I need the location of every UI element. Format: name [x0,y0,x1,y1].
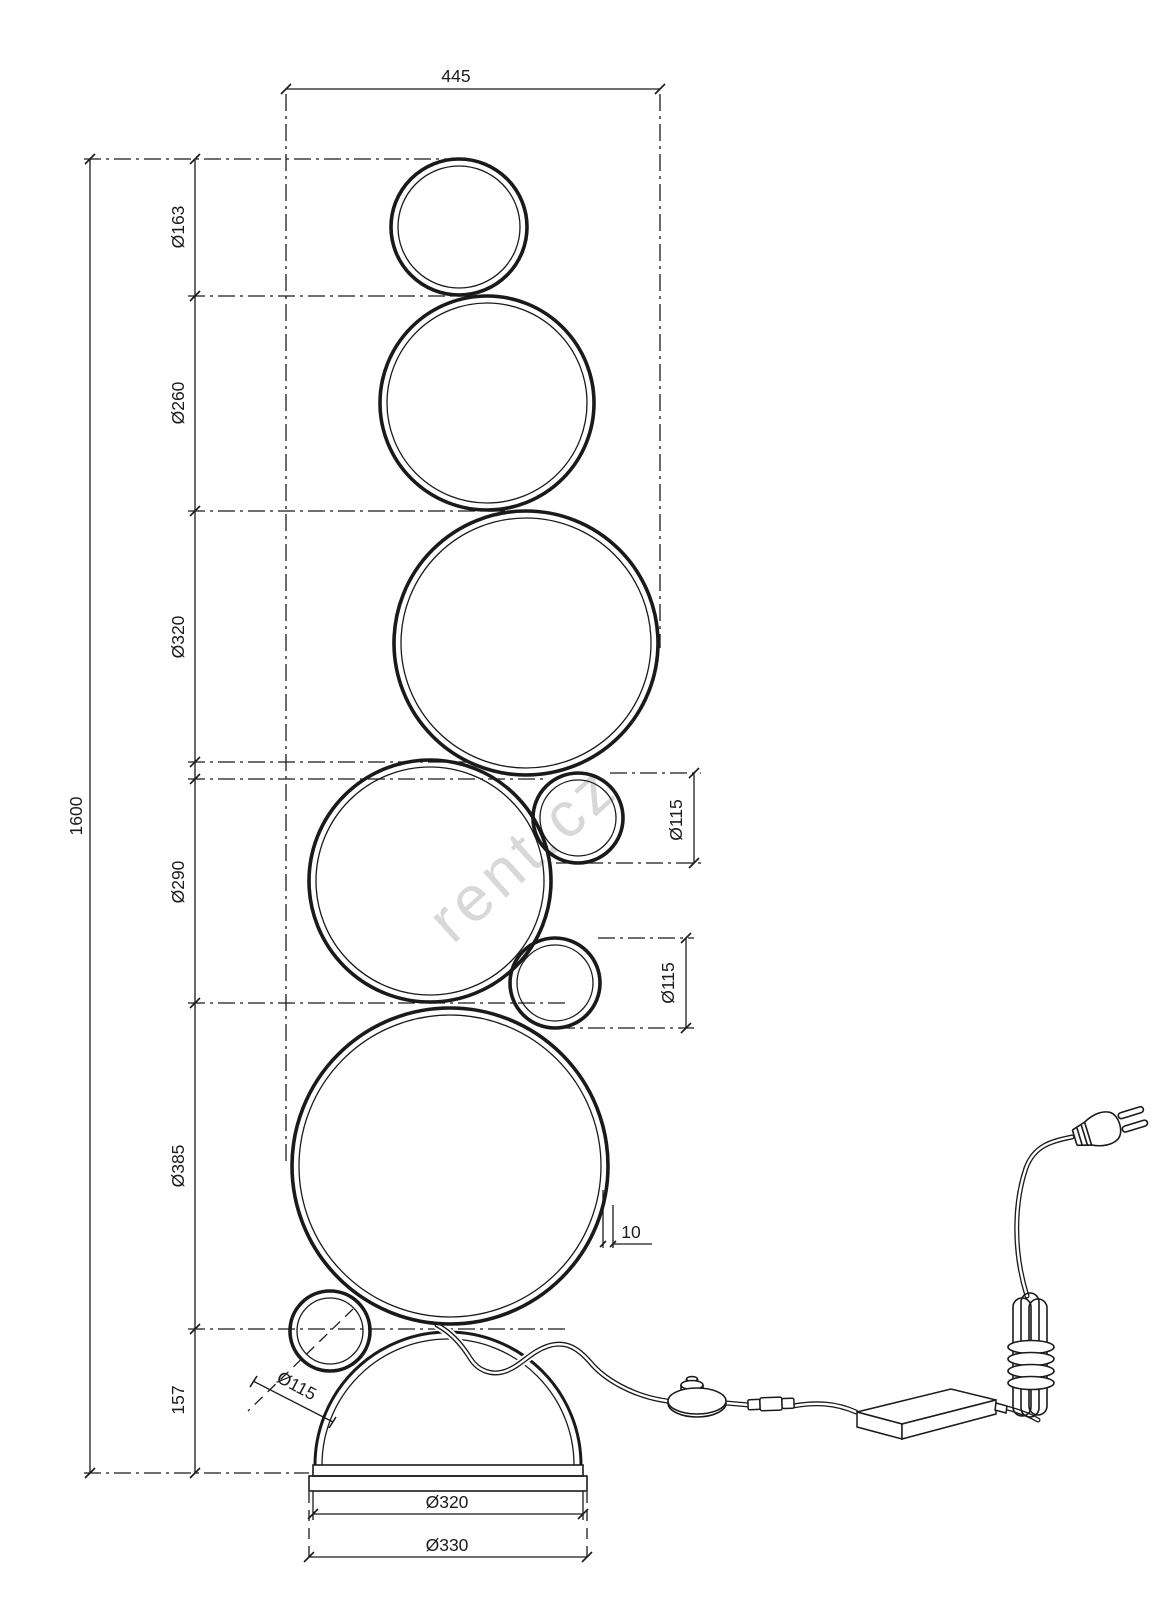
ring-385 [292,1008,608,1324]
plug-pin-bottom [1122,1119,1149,1132]
small-ring-right-upper [533,773,623,863]
dim-base-plate: Ø320 [426,1492,469,1512]
ring-320 [394,511,658,775]
ring-163 [391,159,527,295]
dim-ring-2: Ø260 [168,381,188,424]
inline-connector [748,1397,794,1412]
driver-output-socket [995,1403,1007,1413]
dim-small-ring-bottom-left: Ø115 [274,1367,320,1404]
led-driver-box [857,1389,1007,1439]
ring-260 [380,296,594,510]
dimension-lines [90,89,694,1557]
dim-base-section-height: 157 [168,1385,188,1414]
base-plate [309,1465,587,1491]
dim-overall-width: 445 [441,66,470,86]
cable-coil [1008,1293,1054,1417]
dimension-labels: 445 1600 Ø163 Ø260 Ø320 Ø290 Ø385 157 Ø1… [66,66,686,1555]
light-rings [290,159,658,1371]
dim-ring-5: Ø385 [168,1145,188,1188]
dim-overall-height: 1600 [66,796,86,835]
dimension-ticks [85,84,699,1562]
small-ring-right-lower [510,938,600,1028]
cord-coil-to-plug [1017,1137,1072,1296]
dim-profile-thickness: 10 [621,1222,641,1242]
dim-ring-3: Ø320 [168,615,188,658]
foot-switch [668,1377,726,1417]
dim-ring-4: Ø290 [168,860,188,903]
floor-lamp-dimension-drawing: 445 1600 Ø163 Ø260 Ø320 Ø290 Ø385 157 Ø1… [0,0,1175,1600]
cord-dome-to-switch [437,1325,667,1401]
small-ring-bottom-left [290,1291,370,1371]
dim-small-ring-right-lower: Ø115 [658,962,678,1004]
dim-small-ring-right-upper: Ø115 [666,799,686,841]
dim-ring-top: Ø163 [168,206,188,249]
plug-pin-top [1118,1106,1145,1119]
technical-drawing-page: rent.cz [0,0,1175,1600]
power-plug [1070,1100,1150,1153]
dim-base-foot: Ø330 [426,1535,469,1555]
power-cord [437,1137,1072,1420]
lamp-base [309,1332,587,1491]
